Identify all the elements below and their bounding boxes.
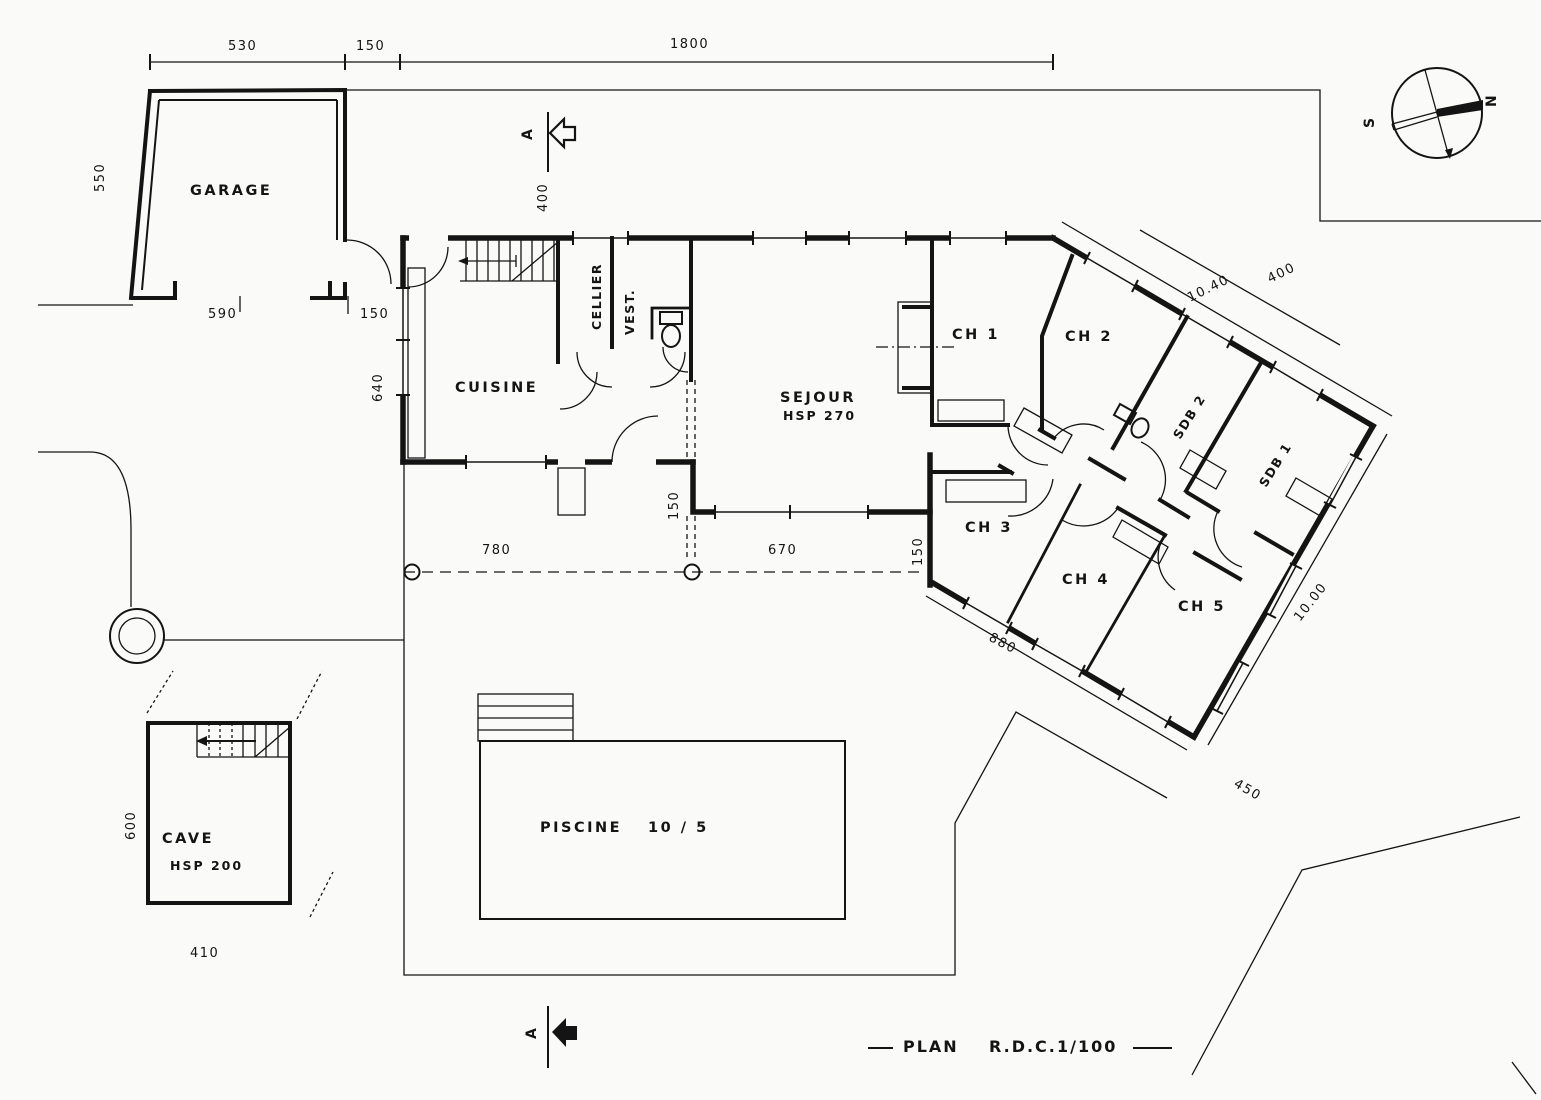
dim-cave-width: 410 xyxy=(190,946,219,961)
sejour-height-label: HSP 270 xyxy=(783,408,856,423)
pool xyxy=(478,694,845,919)
plan-title-part3: 1/100 xyxy=(1057,1037,1117,1056)
compass xyxy=(1392,68,1483,159)
ch1-label: CH 1 xyxy=(952,327,1000,343)
house-exterior-walls xyxy=(403,238,1053,585)
compass-north-label: N xyxy=(1484,95,1500,107)
sdb1-label: SDB 1 xyxy=(1256,440,1295,490)
cave xyxy=(147,671,333,917)
dim-wing-top: 10.40 xyxy=(1185,273,1232,306)
dim-cave-depth: 600 xyxy=(124,811,139,840)
ch2-label: CH 2 xyxy=(1065,329,1113,345)
garage-label: GARAGE xyxy=(190,183,272,199)
cuisine-label: CUISINE xyxy=(455,380,538,396)
dim-site-width: 1800 xyxy=(670,37,709,52)
cave-height-label: HSP 200 xyxy=(170,858,243,873)
dim-wing-bottom: 880 xyxy=(986,630,1019,657)
compass-south-label: S xyxy=(1362,118,1378,128)
cellier-label: CELLIER xyxy=(589,263,604,330)
section-arrow-top xyxy=(550,119,575,147)
dim-house-left: 640 xyxy=(371,373,386,402)
dim-garage-side-gap: 150 xyxy=(360,307,389,322)
dim-garage-depth: 550 xyxy=(93,163,108,192)
piscine-label: PISCINE xyxy=(540,820,622,836)
ch5-label: CH 5 xyxy=(1178,599,1226,615)
bathtub-sdb2 xyxy=(1180,450,1226,489)
closet-ch1 xyxy=(938,400,1004,421)
section-marker-top xyxy=(548,112,575,172)
dim-terrace-left: 780 xyxy=(482,543,511,558)
well-outer-circle xyxy=(110,609,164,663)
cave-label: CAVE xyxy=(162,831,214,847)
dim-garage-door-width: 590 xyxy=(208,307,237,322)
well-inner-circle xyxy=(119,618,155,654)
section-arrow-bottom xyxy=(552,1018,577,1047)
dim-wing-clearance: 450 xyxy=(1231,776,1264,804)
cave-stairs-cut-line xyxy=(255,727,290,757)
floor-plan-sheet: GARAGE CUISINE CELLIER VEST. SEJOUR HSP … xyxy=(0,0,1541,1100)
toilet-bowl xyxy=(662,325,680,347)
sejour-label: SEJOUR xyxy=(780,390,856,406)
vestibule-label: VEST. xyxy=(622,289,637,335)
labels: GARAGE CUISINE CELLIER VEST. SEJOUR HSP … xyxy=(93,37,1500,1056)
kitchen-counter xyxy=(408,268,425,458)
dim-garage-width: 530 xyxy=(228,39,257,54)
section-letter-top: A xyxy=(520,129,536,140)
wing-exterior-walls xyxy=(933,238,1373,737)
dim-step-left: 150 xyxy=(667,491,682,520)
closet-ch4 xyxy=(1113,520,1168,564)
house-stairs xyxy=(458,240,558,281)
plan-title-part2: R.D.C. xyxy=(989,1037,1057,1056)
sdb2-label: SDB 2 xyxy=(1170,392,1209,442)
dim-wing-top-offset: 400 xyxy=(1265,260,1298,286)
dim-garage-house-gap: 150 xyxy=(356,39,385,54)
closet-ch3 xyxy=(946,480,1026,502)
dim-step-right: 150 xyxy=(911,537,926,566)
toilet-tank xyxy=(660,312,682,324)
compass-needle-north xyxy=(1437,100,1483,117)
dim-terrace-right: 670 xyxy=(768,543,797,558)
piscine-size-label: 10 / 5 xyxy=(648,820,709,836)
garage-walls xyxy=(131,90,391,314)
windows xyxy=(396,231,1362,728)
section-marker-bottom xyxy=(548,1006,577,1068)
garage-door-arc xyxy=(347,240,391,284)
bathtub-sdb1 xyxy=(1286,478,1332,517)
section-letter-bottom: A xyxy=(524,1028,540,1039)
plan-title-part1: PLAN xyxy=(903,1037,959,1056)
ch4-label: CH 4 xyxy=(1062,572,1110,588)
exterior-step xyxy=(558,468,585,515)
terrace-outline xyxy=(404,380,1167,975)
ch3-label: CH 3 xyxy=(965,520,1013,536)
stairs-up-arrow xyxy=(458,257,468,265)
dim-wing-end: 10.00 xyxy=(1291,580,1330,624)
dim-section-offset: 400 xyxy=(536,183,551,212)
